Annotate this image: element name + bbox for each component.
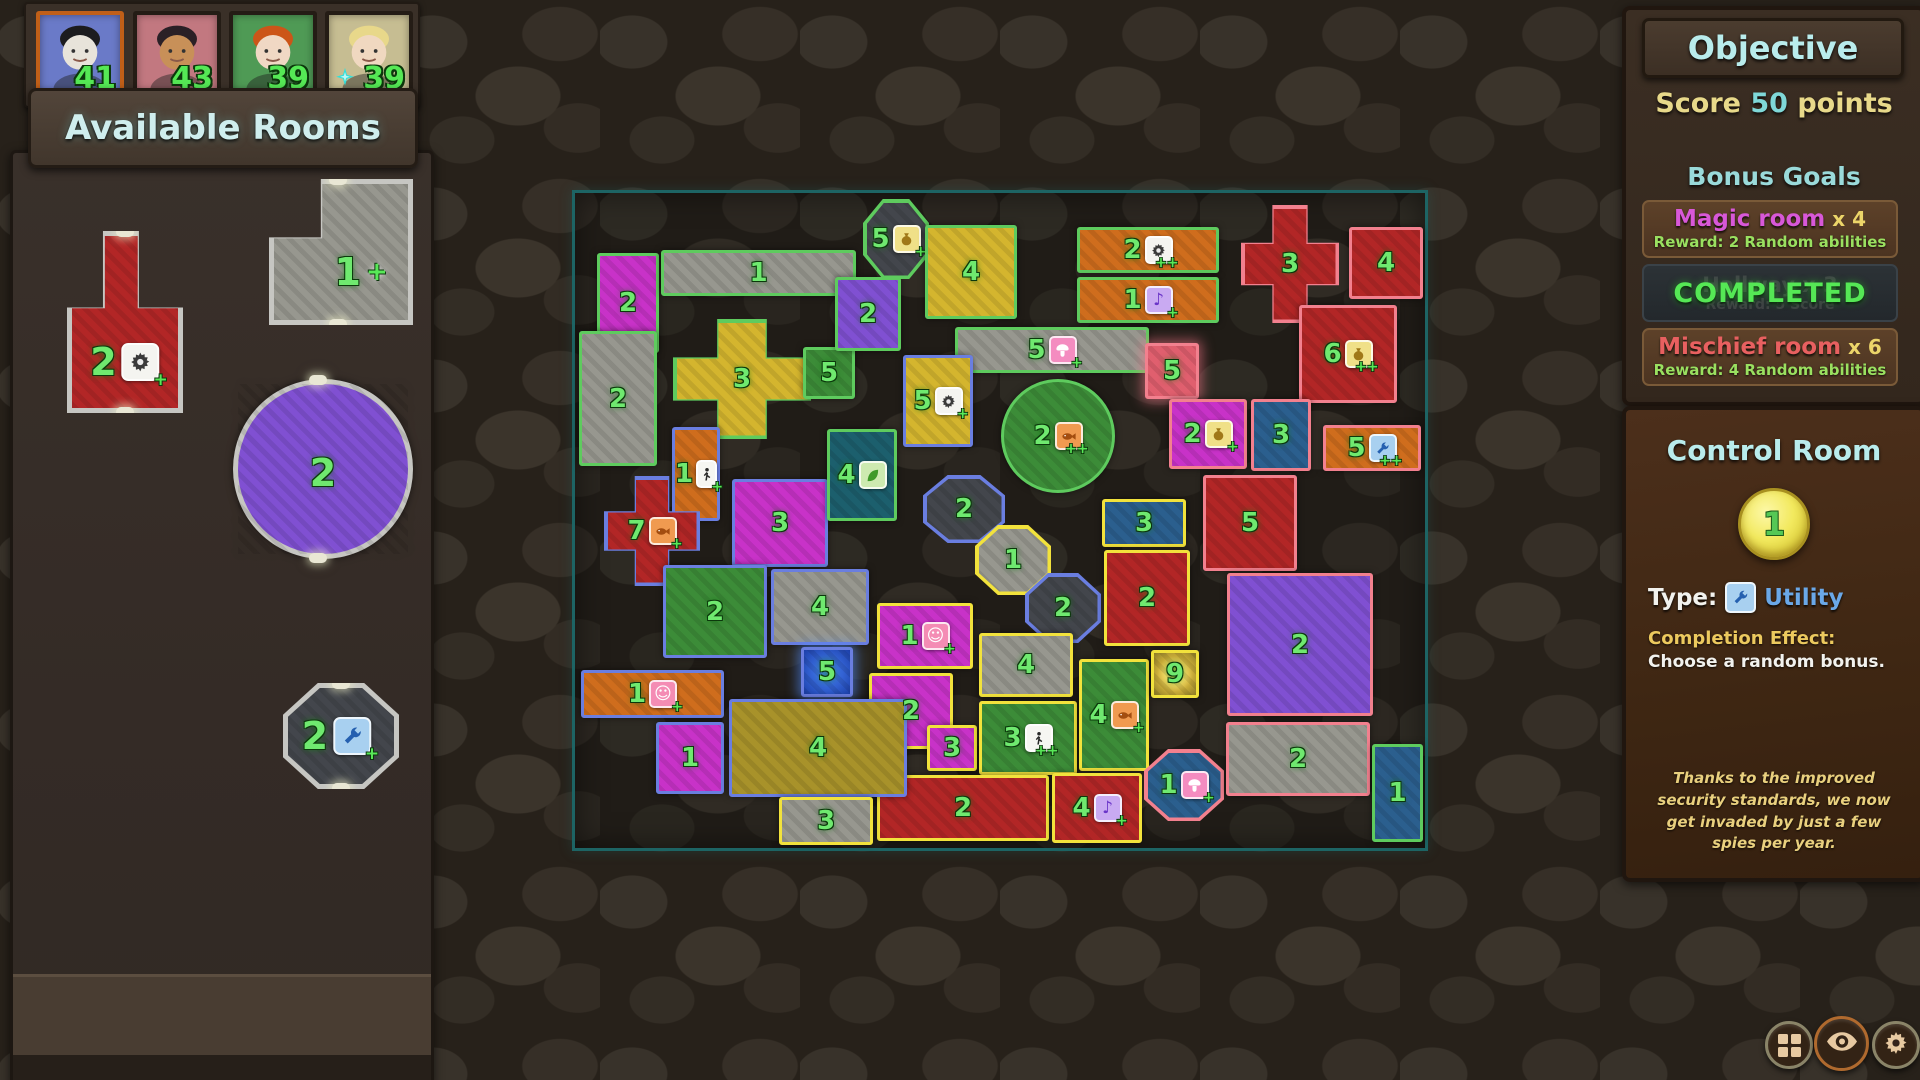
available-room-tshape[interactable]: 2+ <box>67 231 183 413</box>
bonus-goals-title: Bonus Goals <box>1626 162 1920 191</box>
dungeon-map[interactable]: 2123525+42++1♪+5+2++5+5346++2+35++522121… <box>572 190 1428 851</box>
game-screen: 2123525+42++1♪+5+2++5+5346++2+35++522121… <box>0 0 1920 1080</box>
map-room[interactable]: 3++ <box>979 701 1077 775</box>
room-level-number: 1 <box>335 253 361 291</box>
wrench-icon <box>1725 582 1756 613</box>
map-room[interactable]: 1+ <box>1144 749 1224 821</box>
gear-icon <box>1882 1029 1910 1061</box>
score-goal-part: points <box>1788 88 1893 119</box>
available-room-circle[interactable]: 2 <box>233 379 413 559</box>
map-room[interactable]: 4 <box>925 225 1017 319</box>
room-level-number: 2 <box>90 343 116 381</box>
available-rooms-panel: 2+1+22+ <box>10 150 434 1080</box>
objective-panel: Objective Score 50 points Bonus Goals Ma… <box>1622 6 1920 406</box>
score-goal-part: Score <box>1655 88 1750 119</box>
map-room[interactable]: 4 <box>729 699 907 797</box>
door-connector <box>329 319 347 329</box>
map-room[interactable]: 5 <box>801 647 853 697</box>
available-room-lshape[interactable]: 1+ <box>269 179 413 325</box>
room-type-value: Utility <box>1764 585 1843 611</box>
upgrade-plus-icon: + <box>153 370 167 390</box>
wrench-icon: + <box>333 717 371 755</box>
available-room-octagon[interactable]: 2+ <box>283 683 399 789</box>
room-type-row: Type: Utility <box>1648 582 1844 613</box>
player-3[interactable]: 39 <box>229 11 317 99</box>
map-room[interactable]: 3 <box>1102 499 1186 547</box>
door-connector <box>116 407 134 417</box>
map-room[interactable]: 4♪+ <box>1052 773 1142 843</box>
player-2[interactable]: 43 <box>133 11 221 99</box>
goal-count: x 4 <box>1825 207 1866 231</box>
objective-header: Objective <box>1642 18 1904 78</box>
player-1-active[interactable]: 41 <box>36 11 124 99</box>
map-room[interactable]: 4 <box>979 633 1073 697</box>
map-room[interactable]: 9 <box>1151 650 1199 698</box>
map-room[interactable]: 5 <box>1145 343 1199 399</box>
score-goal-part: 50 <box>1750 88 1788 119</box>
map-room[interactable]: 2 <box>1227 573 1373 716</box>
available-room-label: 2 <box>310 454 336 492</box>
map-room[interactable]: 5 <box>1203 475 1297 571</box>
bonus-goal-card: Magic room x 4Reward: 2 Random abilities <box>1642 200 1898 258</box>
completed-badge: COMPLETED <box>1673 278 1866 309</box>
upgrade-plus-icon: + <box>365 744 379 764</box>
map-room[interactable]: 2 <box>579 331 657 466</box>
door-connector <box>332 783 350 793</box>
map-room[interactable]: 1 <box>656 722 724 794</box>
map-room[interactable]: 2++ <box>1077 227 1219 273</box>
map-room[interactable]: 1 <box>1372 744 1423 842</box>
map-room[interactable]: 3 <box>732 479 828 567</box>
eye-icon <box>1827 1032 1857 1055</box>
map-room[interactable]: 5+ <box>955 327 1149 373</box>
map-room[interactable]: 6++ <box>1299 305 1397 403</box>
goal-count: x 6 <box>1841 335 1882 359</box>
map-room[interactable]: 4 <box>827 429 897 521</box>
room-level-number: 2 <box>310 454 336 492</box>
map-room[interactable]: 2++ <box>1001 379 1115 493</box>
available-room-label: 2+ <box>302 717 371 755</box>
bonus-goal-card: Mischief room x 6Reward: 4 Random abilit… <box>1642 328 1898 386</box>
available-rooms-header: Available Rooms <box>28 88 418 168</box>
objective-title: Objective <box>1688 29 1859 67</box>
map-room[interactable]: 3 <box>927 725 977 771</box>
map-room[interactable]: 1☺+ <box>877 603 973 669</box>
goal-room-name: Magic room <box>1674 206 1825 232</box>
active-turn-star-icon <box>334 67 356 89</box>
completed-goal-card: Hallway x 3Reward: 5 ScoreCOMPLETED <box>1642 264 1898 322</box>
map-room[interactable]: 1♪+ <box>1077 277 1219 323</box>
player-4[interactable]: 39 <box>325 11 413 99</box>
door-connector <box>309 375 327 385</box>
room-type-label: Type: <box>1648 585 1717 611</box>
room-level-number: 2 <box>302 717 328 755</box>
utility-wrench-icon <box>1725 582 1756 613</box>
vision-button[interactable] <box>1814 1016 1869 1071</box>
available-room-label: 2+ <box>90 343 159 381</box>
control-room-panel: Control Room 1 Type: Utility Completion … <box>1622 406 1920 882</box>
completion-effect-text: Choose a random bonus. <box>1648 652 1885 672</box>
map-room[interactable]: 4 <box>771 569 869 645</box>
goal-reward: Reward: 4 Random abilities <box>1654 361 1887 379</box>
rooms-grid-button[interactable] <box>1765 1021 1813 1069</box>
add-room-icon: + <box>366 259 388 285</box>
map-room[interactable]: 2+ <box>1169 399 1247 469</box>
map-room[interactable]: 4+ <box>1079 659 1149 771</box>
door-connector <box>309 553 327 563</box>
gear-icon: + <box>122 343 160 381</box>
map-room[interactable]: 3 <box>1251 399 1311 471</box>
control-room-title: Control Room <box>1626 434 1920 467</box>
map-room[interactable]: 5+ <box>863 199 929 279</box>
map-room[interactable]: 2 <box>1226 722 1370 796</box>
available-rooms-title: Available Rooms <box>65 108 381 148</box>
door-connector <box>116 227 134 237</box>
map-room[interactable]: 3 <box>673 319 811 439</box>
goal-reward: Reward: 2 Random abilities <box>1654 233 1887 251</box>
goal-room-name: Mischief room <box>1658 334 1841 360</box>
map-room[interactable]: 5++ <box>1323 425 1421 471</box>
map-room[interactable]: 4 <box>1349 227 1423 299</box>
room-level-value: 1 <box>1763 505 1785 543</box>
room-level-badge: 1 <box>1738 488 1810 560</box>
flavor-text: Thanks to the improved security standard… <box>1650 768 1898 855</box>
map-room[interactable]: 5 <box>803 347 855 399</box>
map-room[interactable]: 3 <box>779 797 873 845</box>
map-room[interactable]: 1+ <box>672 427 720 521</box>
panel-bottom-trim <box>13 1055 431 1080</box>
score-goal-text: Score 50 points <box>1626 88 1920 119</box>
door-connector <box>332 679 350 689</box>
map-room[interactable]: 1 <box>661 250 856 296</box>
available-rooms-footer <box>13 974 431 1055</box>
map-room[interactable]: 2 <box>663 565 767 658</box>
map-room[interactable]: 2 <box>1104 550 1190 646</box>
settings-button[interactable] <box>1872 1021 1920 1069</box>
door-connector <box>329 175 347 185</box>
map-room[interactable]: 1☺+ <box>581 670 724 718</box>
map-room[interactable]: 5+ <box>903 355 973 447</box>
map-room[interactable]: 2 <box>835 277 901 351</box>
available-room-label: 1+ <box>335 253 388 291</box>
grid-icon <box>1778 1034 1801 1057</box>
completion-effect-label: Completion Effect: <box>1648 628 1835 649</box>
